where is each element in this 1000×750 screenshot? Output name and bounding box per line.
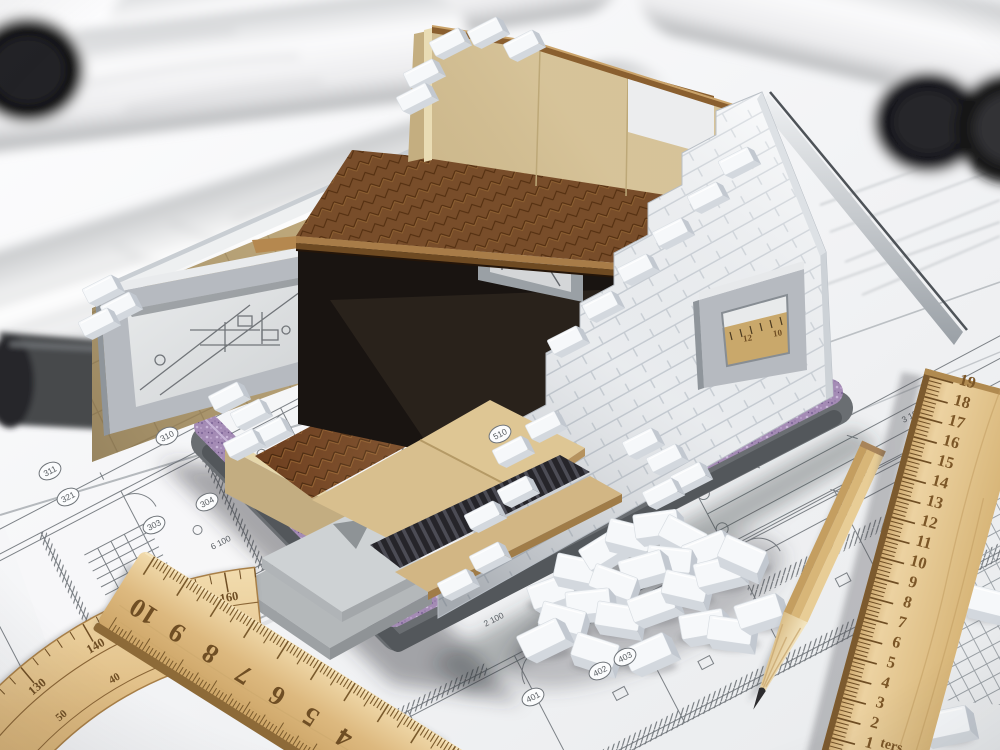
scene-image: 1210 3113213033043105104014024036 1002 1… [0, 0, 1000, 750]
photo-stage: 1210 3113213033043105104014024036 1002 1… [0, 0, 1000, 750]
vignette [0, 0, 1000, 750]
